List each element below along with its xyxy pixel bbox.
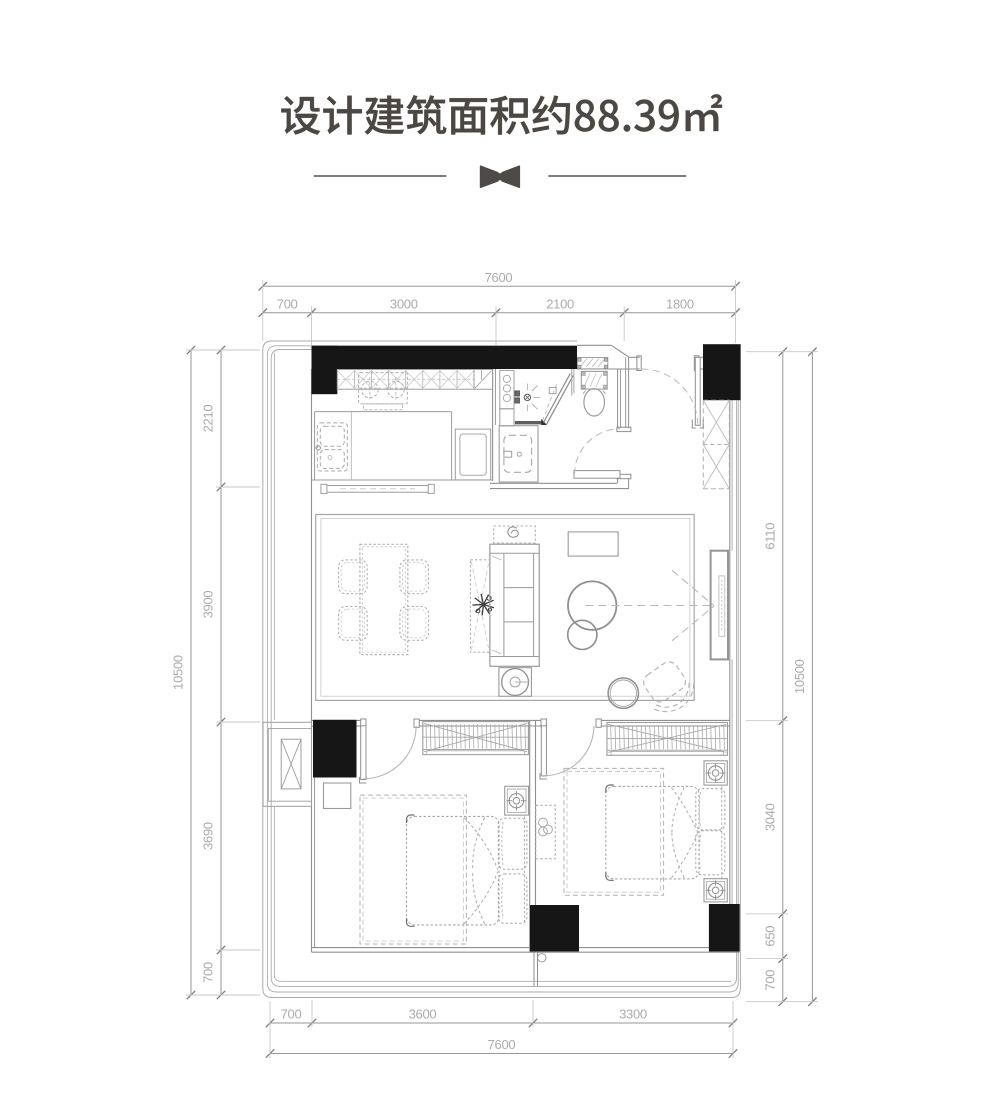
svg-text:3600: 3600 xyxy=(409,1007,437,1022)
svg-text:700: 700 xyxy=(281,1007,302,1022)
svg-text:700: 700 xyxy=(201,962,216,983)
svg-text:3040: 3040 xyxy=(762,803,777,831)
svg-text:3000: 3000 xyxy=(390,297,418,312)
svg-text:700: 700 xyxy=(277,297,298,312)
svg-text:700: 700 xyxy=(762,970,777,991)
svg-text:6110: 6110 xyxy=(762,523,777,550)
svg-text:10500: 10500 xyxy=(792,659,807,694)
svg-text:7600: 7600 xyxy=(488,1037,516,1052)
svg-text:3900: 3900 xyxy=(201,591,216,619)
svg-text:3300: 3300 xyxy=(619,1007,647,1022)
svg-text:2210: 2210 xyxy=(201,405,216,433)
svg-text:1800: 1800 xyxy=(666,297,694,312)
svg-text:7600: 7600 xyxy=(485,270,513,285)
svg-text:3690: 3690 xyxy=(201,822,216,850)
svg-text:2100: 2100 xyxy=(546,297,574,312)
svg-text:10500: 10500 xyxy=(171,655,186,690)
svg-text:650: 650 xyxy=(762,926,777,947)
